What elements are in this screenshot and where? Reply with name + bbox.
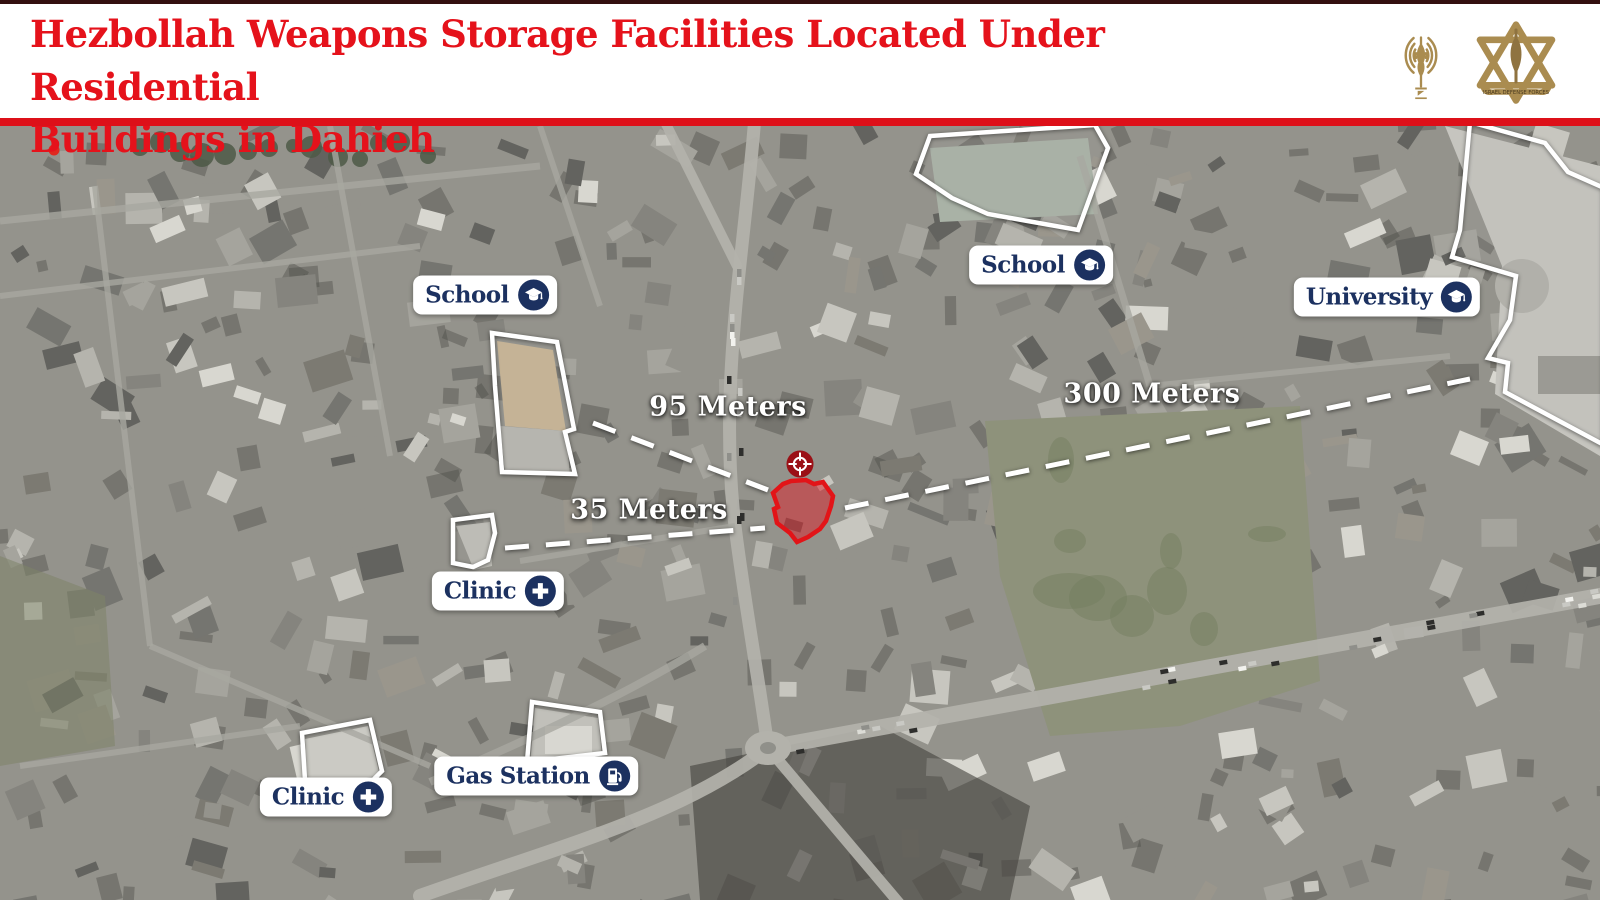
page-title: Hezbollah Weapons Storage Facilities Loc…: [30, 8, 1250, 166]
window-top-strip: [0, 0, 1600, 4]
facility-label-clinic-upper: Clinic: [432, 572, 564, 611]
infographic-page: { "header": { "title_line1": "Hezbollah …: [0, 0, 1600, 900]
idf-emblem-icon: ISRAEL DEFENSE FORCES: [1468, 19, 1564, 113]
distance-95-label: 95 Meters: [649, 392, 807, 423]
idf-spokesperson-emblem-icon: [1388, 21, 1454, 111]
page-title-line1: Hezbollah Weapons Storage Facilities Loc…: [30, 12, 1104, 109]
distance-35-label: 35 Meters: [570, 495, 728, 526]
facility-label-school-left: School: [413, 276, 557, 315]
facility-label-text: School: [425, 282, 509, 309]
facility-label-gas-station: Gas Station: [434, 757, 638, 796]
distance-300-label: 300 Meters: [1064, 379, 1241, 410]
medical-cross-icon: [525, 576, 556, 607]
graduation-cap-icon: [1441, 282, 1472, 313]
satellite-basemap: [0, 126, 1600, 900]
satellite-map: [0, 126, 1600, 900]
facility-label-school-top: School: [969, 246, 1113, 285]
graduation-cap-icon: [518, 280, 549, 311]
fuel-pump-icon: [599, 761, 630, 792]
facility-label-university: University: [1294, 278, 1480, 317]
header-band: Hezbollah Weapons Storage Facilities Loc…: [0, 4, 1600, 118]
graduation-cap-icon: [1074, 250, 1105, 281]
facility-label-text: University: [1306, 284, 1432, 311]
medical-cross-icon: [353, 782, 384, 813]
facility-label-text: Gas Station: [446, 763, 590, 790]
header-logos: ISRAEL DEFENSE FORCES: [1388, 18, 1564, 114]
facility-label-text: Clinic: [444, 578, 516, 605]
facility-label-text: School: [981, 252, 1065, 279]
facility-label-clinic-lower: Clinic: [260, 778, 392, 817]
idf-banner-text: ISRAEL DEFENSE FORCES: [1483, 90, 1550, 96]
header-red-divider: [0, 118, 1600, 126]
facility-label-text: Clinic: [272, 784, 344, 811]
